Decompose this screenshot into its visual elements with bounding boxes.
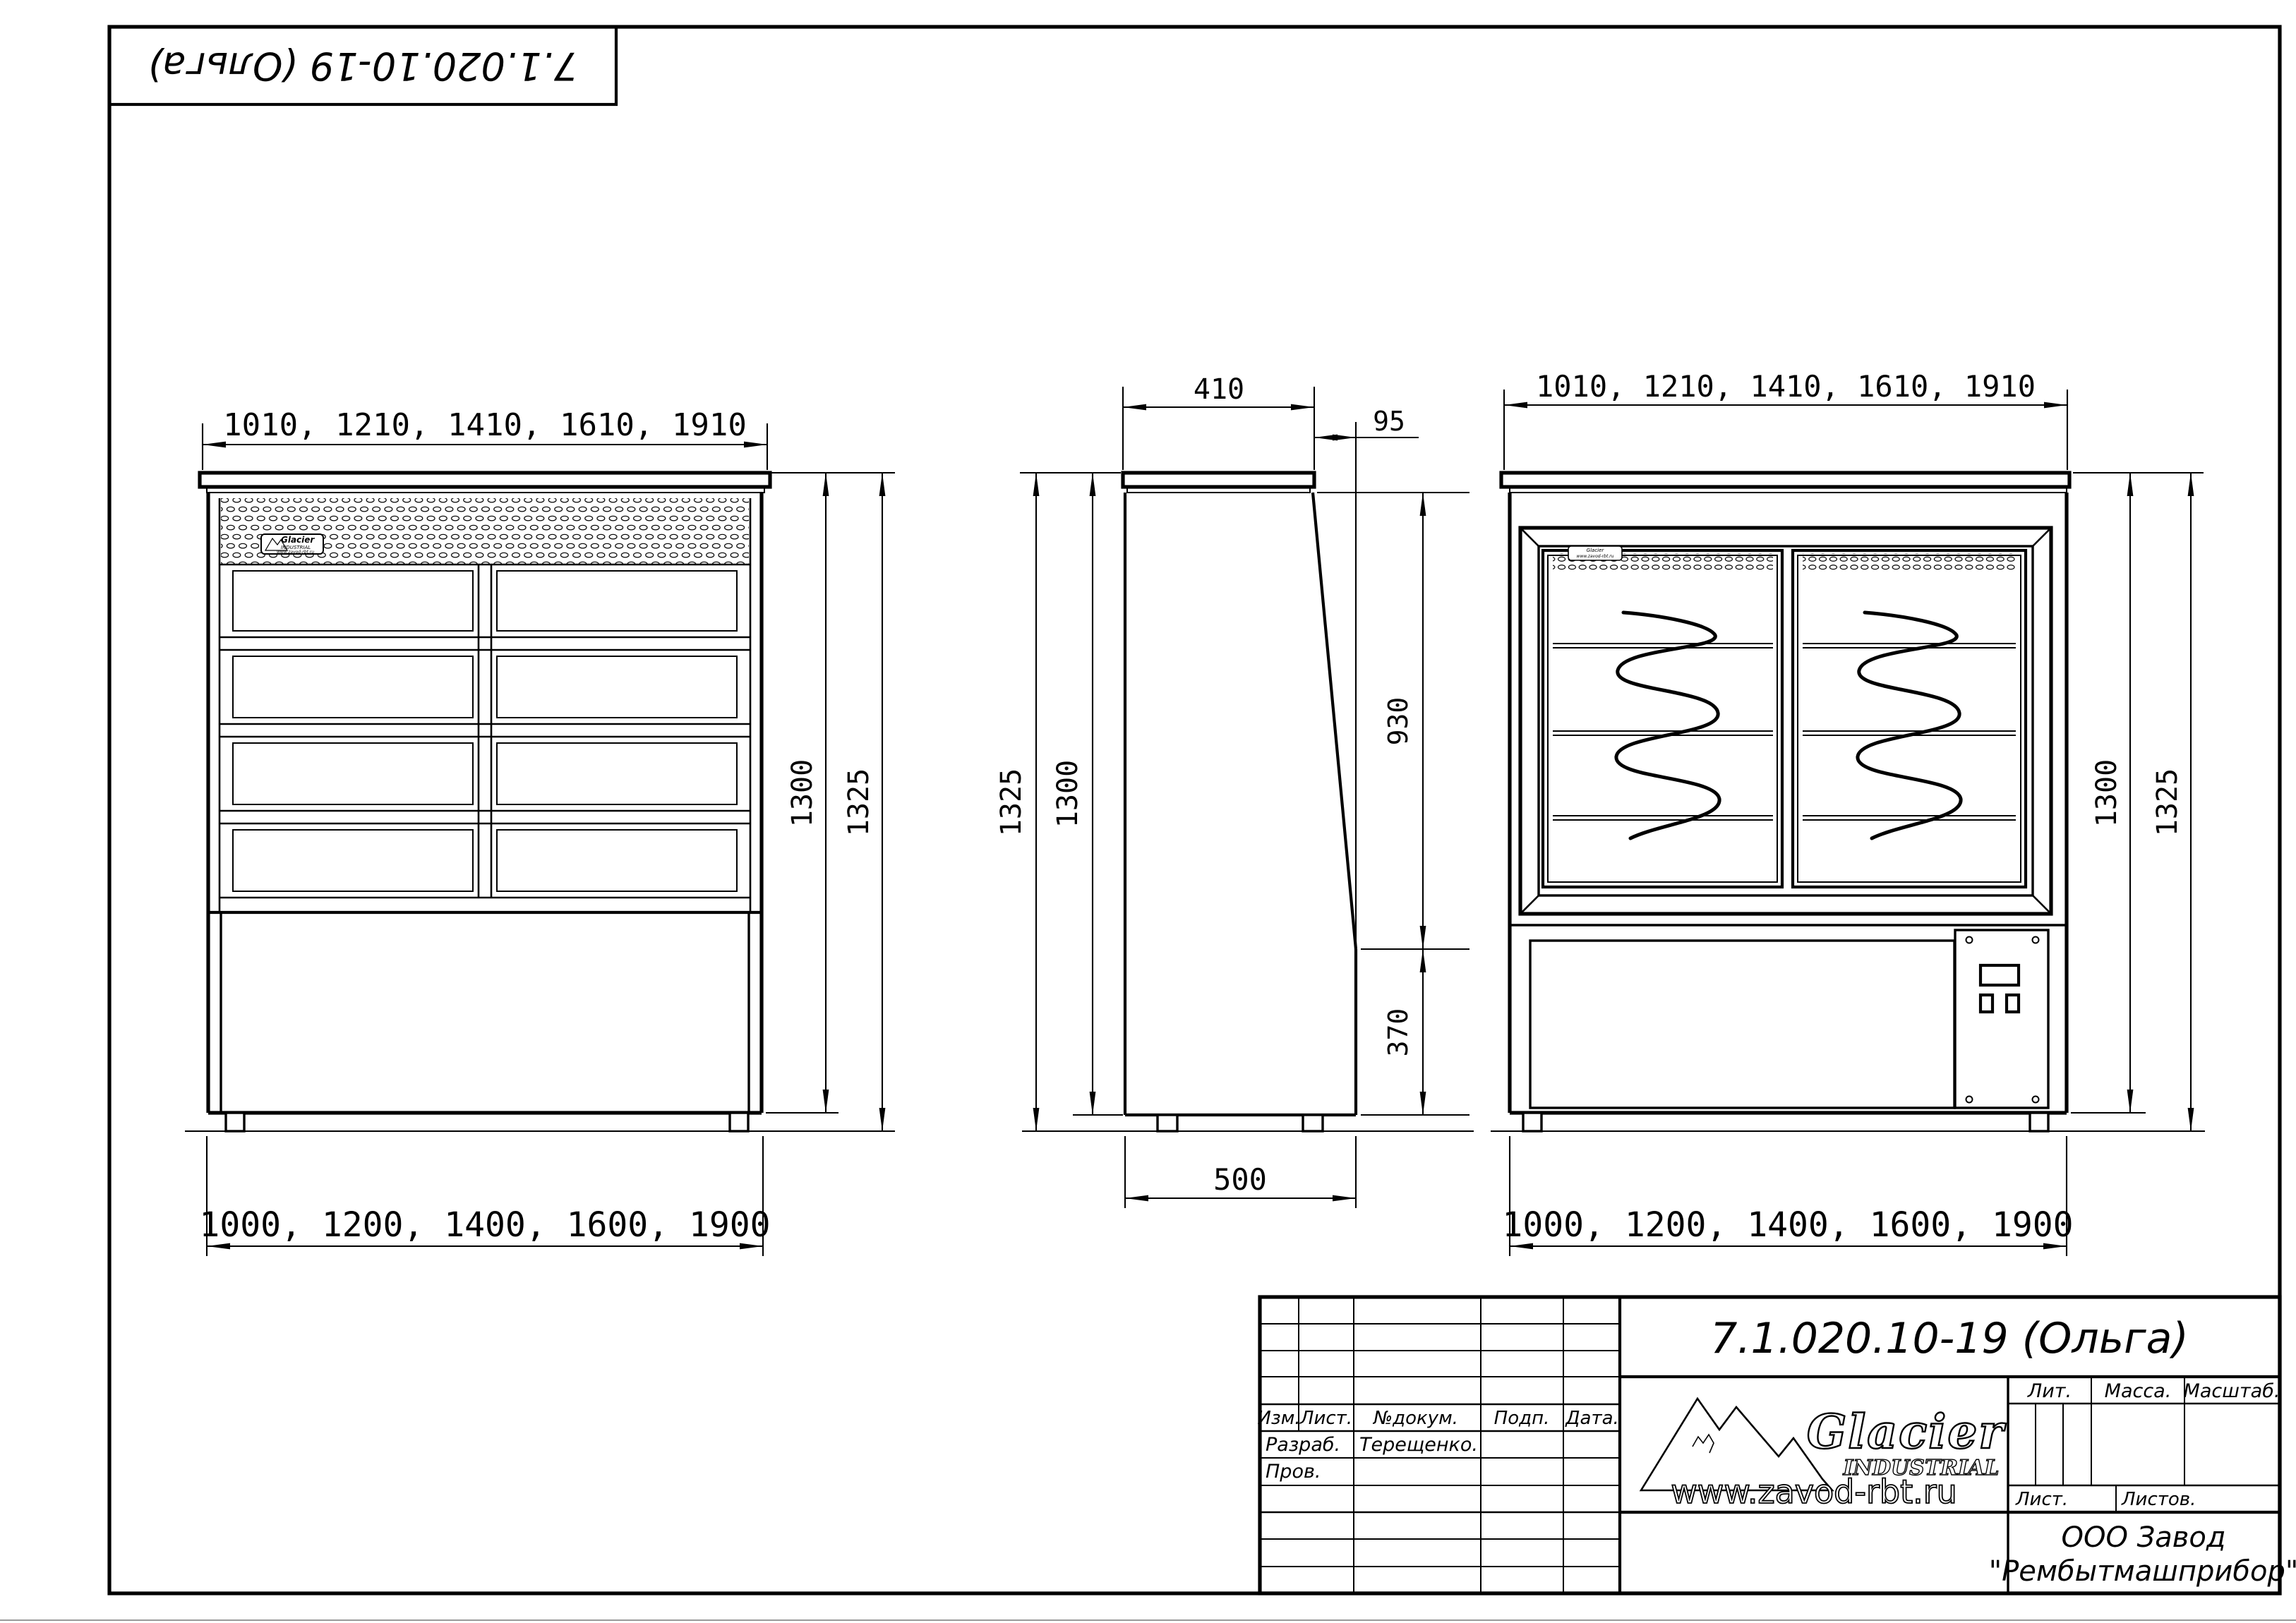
side-foot-right [1303, 1115, 1323, 1131]
glass-reflection-curve [1616, 613, 1719, 838]
front-view: Glacier INDUSTRIAL www.zavod-rbt.ru [185, 407, 895, 1256]
rear-top-dim-text: 1010, 1210, 1410, 1610, 1910 [1536, 369, 2036, 404]
rear-door-left: Glacier www.zavod-rbt.ru [1543, 546, 1782, 887]
front-shelves [220, 565, 750, 898]
side-dim-500: 500 [1125, 1136, 1356, 1208]
side-dim-930-370: 930 370 [1317, 493, 1469, 1115]
front-dim-bottom: 1000, 1200, 1400, 1600, 1900 [199, 1136, 770, 1256]
rear-foot-right [2030, 1113, 2048, 1131]
corner-stamp: 7.1.020.10-19 (Ольга) [109, 27, 616, 104]
logo-name: Glacier [1807, 1404, 2006, 1459]
title-logo: Glacier INDUSTRIAL www.zavod-rbt.ru [1641, 1399, 2006, 1511]
designation-text: 7.1.020.10-19 (Ольга) [1710, 1314, 2189, 1363]
rear-door-frame [1520, 528, 2051, 914]
drawing-sheet: 7.1.020.10-19 (Ольга) Glacier INDUSTRIAL… [0, 0, 2296, 1623]
rear-view: Glacier www.zavod-rbt.ru [1491, 369, 2205, 1256]
side-dim-410: 410 [1123, 373, 1314, 470]
front-h1325-text: 1325 [843, 768, 875, 836]
rear-dim-heights: 1300 1325 [2071, 473, 2204, 1131]
front-brand-label: Glacier INDUSTRIAL www.zavod-rbt.ru [261, 534, 323, 555]
side-h1300-text: 1300 [1052, 760, 1084, 828]
front-dim-top: 1010, 1210, 1410, 1610, 1910 [203, 407, 767, 470]
rear-dim-top: 1010, 1210, 1410, 1610, 1910 [1504, 369, 2067, 470]
side-h1325-text: 1325 [995, 768, 1028, 836]
glass-reflection-curve [1858, 613, 1961, 838]
door-label-site: www.zavod-rbt.ru [1576, 554, 1613, 559]
company-line1: ООО Завод [2061, 1521, 2225, 1554]
side-95-text: 95 [1373, 406, 1405, 437]
side-foot-left [1158, 1115, 1177, 1131]
front-canopy [200, 473, 770, 487]
razrab-name: Терещенко. [1359, 1434, 1478, 1456]
front-louver-grille [221, 912, 749, 1113]
door-label-name: Glacier [1587, 548, 1605, 553]
col-list: Лист. [1299, 1408, 1352, 1429]
front-top-dim-text: 1010, 1210, 1410, 1610, 1910 [223, 407, 747, 443]
rear-condenser-grille [1530, 941, 1954, 1108]
rear-h1300-text: 1300 [2091, 759, 2123, 827]
col-izm: Изм. [1257, 1408, 1300, 1429]
prov-label: Пров. [1266, 1461, 1321, 1483]
logo-site: www.zavod-rbt.ru [1671, 1473, 1957, 1511]
front-foot-left [226, 1113, 244, 1131]
corner-designation: 7.1.020.10-19 (Ольга) [148, 44, 578, 88]
rear-foot-left [1523, 1113, 1541, 1131]
rear-door-label: Glacier www.zavod-rbt.ru [1568, 546, 1622, 560]
label-logo-name: Glacier [281, 535, 315, 545]
col-docnum: №докум. [1372, 1408, 1458, 1429]
title-block-left-table: Изм. Лист. №докум. Подп. Дата. Разраб. Т… [1257, 1297, 1620, 1593]
list-label: Лист. [2015, 1489, 2068, 1510]
rear-dim-bottom: 1000, 1200, 1400, 1600, 1900 [1502, 1136, 2073, 1256]
side-370-text: 370 [1383, 1008, 1414, 1057]
razrab-label: Разраб. [1266, 1434, 1340, 1456]
rear-door-right [1793, 550, 2026, 887]
col-data: Дата. [1565, 1408, 1619, 1429]
lit-label: Лит. [2027, 1380, 2072, 1402]
side-410-text: 410 [1194, 373, 1244, 406]
front-bottom-dim-text: 1000, 1200, 1400, 1600, 1900 [199, 1205, 770, 1245]
front-foot-right [730, 1113, 748, 1131]
side-500-text: 500 [1213, 1162, 1267, 1197]
side-930-text: 930 [1383, 697, 1414, 746]
title-block: Изм. Лист. №докум. Подп. Дата. Разраб. Т… [1257, 1297, 2296, 1593]
rear-h1325-text: 1325 [2151, 768, 2184, 836]
company-line2: "Рембытмашприбор" [1989, 1555, 2296, 1588]
front-h1300-text: 1300 [786, 759, 819, 827]
control-panel [1955, 930, 2048, 1108]
front-dim-heights: 1300 1325 [766, 473, 895, 1131]
massa-label: Масса. [2105, 1380, 2172, 1402]
masshtab-label: Масштаб. [2184, 1380, 2280, 1402]
rear-canopy [1501, 473, 2069, 487]
label-logo-site: www.zavod-rbt.ru [277, 550, 314, 555]
side-view: 410 95 930 370 1325 1300 [995, 373, 1474, 1208]
company-cell: ООО Завод "Рембытмашприбор" [1989, 1521, 2296, 1588]
listov-label: Листов. [2121, 1489, 2196, 1510]
col-podp: Подп. [1494, 1408, 1550, 1429]
rear-bottom-dim-text: 1000, 1200, 1400, 1600, 1900 [1502, 1205, 2073, 1245]
side-dim-heights: 1325 1300 [995, 473, 1123, 1131]
side-canopy [1123, 473, 1314, 487]
